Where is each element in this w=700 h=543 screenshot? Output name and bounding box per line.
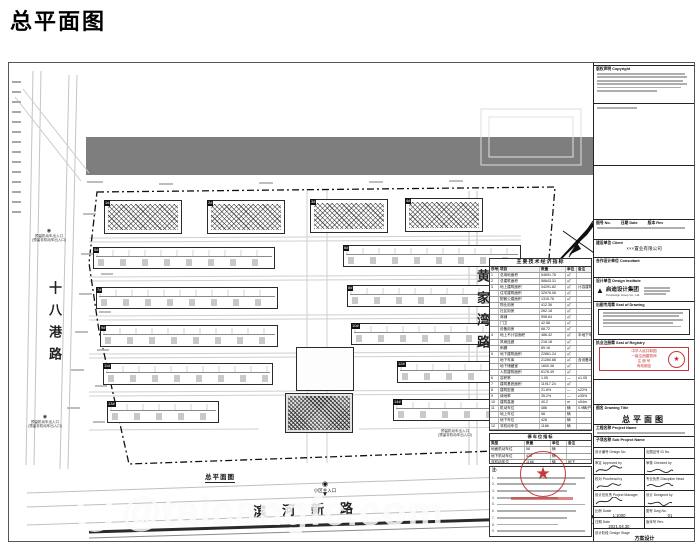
building-4#: 4# [405,198,483,232]
note-line: 9. [492,529,589,533]
registry-box: 执业注册章 Seal of Registry 中华人民共和国 一级注册建筑师 注… [594,339,694,379]
project-box: 工程名称 Project Name [594,424,694,436]
indicator-row: 13总户数540户 [490,429,591,431]
left-entrance-marker-top: ◉ 预留机动车出入口 (预留非机动车出入口) [23,229,75,242]
left-entrance-marker-bottom: ◉ 预留机动车出入口 (预留非机动车出入口) [19,415,71,428]
building-3#: 3# [310,199,388,233]
indicator-row: 5地下建筑面积22861.24㎡ [490,351,591,357]
indicator-row: 门卫42.58㎡ [490,320,591,326]
spare-box [594,379,694,404]
building-number: 10# [351,323,360,329]
main-entrance-marker: ◉ 小区主入口 ▼ [295,481,355,498]
indicator-row: 地上车位58辆 [490,411,591,417]
building-2#: 2# [207,200,285,234]
client-name: ×××置业有限公司 [594,246,694,252]
building-13#: 13# [107,401,219,423]
building-number: 4# [405,198,411,204]
subproject-box: 子项名称 Sub Project Name [594,436,694,447]
indicator-row: 配套公建面积1315.76㎡ [490,296,591,302]
stage-value: 方案设计 [594,535,695,542]
page-title: 总平面图 [10,4,106,36]
main-entrance-icon: ◉ [295,481,355,488]
note-line: 6. [492,509,589,513]
site-plan-page: 总平面图 [0,0,700,543]
signoff-box [594,103,694,165]
indicators-rows: 1总用地面积54691.76㎡2总建筑面积58643.31㎡3地上建筑面积342… [490,272,591,431]
road-label-bottom: 滨河新路 [253,497,370,520]
notes-label: 注: [492,468,497,472]
building-11#: 11# [103,363,273,385]
building [296,347,354,391]
building-number: 7# [96,287,102,293]
building-number: 2# [207,200,213,206]
parking-title: 停车位指标 [490,434,591,441]
indicator-row: 3地上建筑面积34291.82㎡计容建筑面积 [490,284,591,290]
catalog-box: 图号 No. 日期 Date 版本 Rev [594,219,694,239]
copyright-box: 版权声明 Copyright [594,65,694,103]
building-number: 8# [347,285,353,291]
indicator-row: 社区用房262.18㎡ [490,308,591,314]
indicator-row: 人防建筑面积6176.49㎡ [490,369,591,375]
indicator-row: 7建筑基底面积11917.24㎡ [490,381,591,387]
building-number: 5# [93,247,99,253]
bottom-entrance-marker: 预留机动车出入口 (预留非机动车出入口) [429,429,481,437]
indicator-row: 商铺598.64㎡ [490,314,591,320]
institute-logo: ▲ 启迪设计集团 Tus-Design Group Co., Ltd. [594,284,694,298]
indicator-row: 12非机动车位1186辆 [490,423,591,429]
building-number: 12# [397,361,406,367]
plot-seal-stamp [598,309,690,335]
note-line: 7. [492,516,589,520]
architect-stamp: 中华人民共和国 一级注册建筑师 注 册 号 有效期至 ★ [599,347,689,371]
consultant-box: 合作设计单位 Consultant [594,257,694,277]
canal-band [86,137,593,175]
note-line: 10. [492,536,589,537]
building-number: 3# [310,199,316,205]
indicator-row: 风雨连廊216.18㎡ [490,339,591,345]
indicator-row: 住宅建筑面积32976.06㎡ [490,290,591,296]
indicator-row: 地下车库21260.86㎡含设备用房 [490,357,591,363]
building-1#: 1# [104,200,182,234]
plan-caption: 总平面图 [205,471,235,483]
approval-seal-icon: ★ [520,451,566,497]
indicator-row: 雨棚89.16㎡ [490,345,591,351]
triangle-logo-icon: ▲ [596,287,604,295]
indicator-row: 9绿地率35.2%—≥35% [490,393,591,399]
indicators-title: 主要技术经济指标 [490,259,591,267]
indicator-row: 10建筑高度40.2m≤54m [490,399,591,405]
building [285,393,353,433]
road-label-left: 十八港路 [45,281,64,369]
indicator-row: 11机动车位486辆0.9辆/户 [490,405,591,411]
indicators-table: 主要技术经济指标 序号项目数量单位备注 1总用地面积54691.76㎡2总建筑面… [489,258,592,431]
indicator-row: 6容积率1.05—≤1.05 [490,375,591,381]
building-7#: 7# [96,287,278,309]
drawing-title-value: 总平面图 [594,414,694,425]
institute-box: 设计单位 Design Institute ▲ 启迪设计集团 Tus-Desig… [594,277,694,301]
indicator-row: 2总建筑面积58643.31㎡ [490,278,591,284]
blank-box [594,165,694,219]
approval-seal-date [511,497,573,500]
building-number: 13# [107,401,116,407]
note-line: 8. [492,523,589,527]
parking-header: 类型数量单位备注 [490,441,591,446]
entrance-arrow-icon: ▼ [295,493,355,498]
building-5#: 5# [93,247,275,269]
building-9#: 9# [100,325,278,347]
indicator-row: 1总用地面积54691.76㎡ [490,272,591,278]
indicator-row: 4地上不计容面积486.42㎡半地下车库 [490,332,591,338]
client-box: 建设单位 Client ×××置业有限公司 [594,239,694,257]
building-number: 1# [104,200,110,206]
building-number: 11# [103,363,111,369]
building-number: 14# [393,399,402,405]
building-number: 6# [343,245,349,251]
indicator-row: 设备用房68.72㎡ [490,326,591,332]
drawing-title-box: 图名 Drawing Title 总平面图 [594,404,694,424]
indicator-row: 物业用房412.36㎡ [490,302,591,308]
building-number: 9# [100,325,106,331]
title-block: 版权声明 Copyright 图号 No. 日期 Date 版本 Rev 建设单… [593,63,694,541]
indicator-row: 地下车位428辆 [490,417,591,423]
indicators-header: 序号项目数量单位备注 [490,267,591,272]
drawing-sheet: 1#2#3#4#5#6#7#8#9#10#11#12#13#14# 十八港路 黄… [8,62,695,542]
indicator-row: 地下储藏室1600.38㎡ [490,363,591,369]
architect-seal-icon: ★ [668,351,685,368]
indicator-row: 8建筑密度21.8%—≤22% [490,387,591,393]
note-line: 5. [492,502,589,506]
plot-seal-box: 出图专用章 Seal of Drawing [594,301,694,339]
